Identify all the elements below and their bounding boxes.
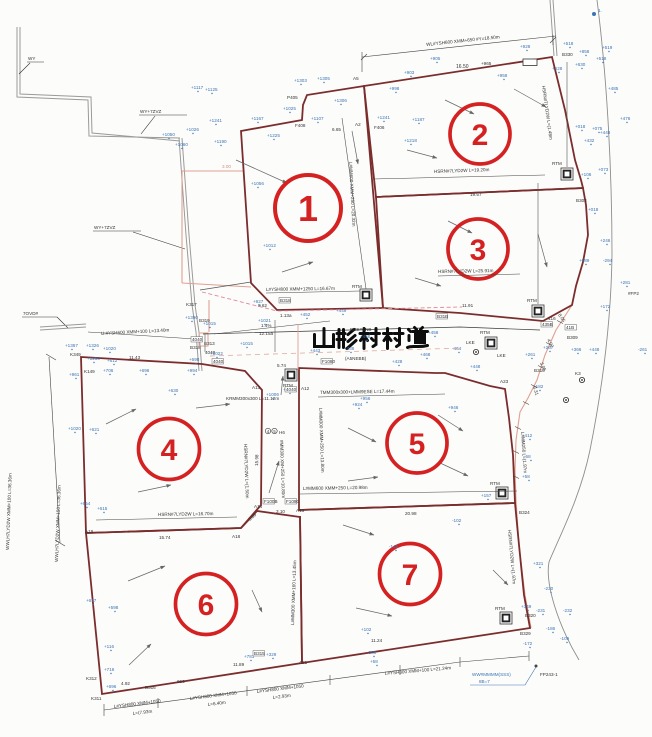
svg-text:+696: +696 — [139, 368, 150, 373]
svg-text:+1015: +1015 — [240, 341, 253, 346]
svg-text:+321: +321 — [533, 561, 544, 566]
svg-text:+349: +349 — [521, 604, 532, 609]
svg-text:1: 1 — [298, 188, 318, 229]
svg-text:1.4%: 1.4% — [261, 323, 271, 328]
svg-text:+1050: +1050 — [162, 132, 175, 137]
svg-text:4.92: 4.92 — [121, 681, 130, 686]
svg-text:20.98: 20.98 — [405, 511, 417, 516]
svg-text:A19: A19 — [85, 529, 94, 534]
svg-text:HSRN#7LYD2W L=16.70m: HSRN#7LYD2W L=16.70m — [158, 511, 214, 517]
svg-text:B324: B324 — [519, 510, 530, 515]
svg-text:+432: +432 — [584, 138, 595, 143]
svg-text:B329: B329 — [520, 631, 531, 636]
svg-text:1.13a: 1.13a — [280, 313, 292, 318]
svg-text:+448: +448 — [589, 347, 600, 352]
svg-text:L#YSH800 XMM+1050: L#YSH800 XMM+1050 — [190, 690, 238, 701]
svg-text:+1015: +1015 — [203, 321, 216, 326]
svg-text:A14: A14 — [254, 504, 263, 509]
svg-text:+1190: +1190 — [214, 139, 227, 144]
svg-text:-294: -294 — [603, 258, 613, 263]
svg-text:B320: B320 — [525, 613, 536, 618]
svg-text:A5: A5 — [353, 76, 359, 81]
svg-text:15.98: 15.98 — [254, 454, 259, 466]
svg-text:+1125: +1125 — [205, 87, 218, 92]
svg-text:-231: -231 — [536, 608, 546, 613]
svg-text:B31B: B31B — [437, 314, 448, 319]
svg-text:6.65: 6.65 — [332, 127, 341, 132]
svg-text:8.05: 8.05 — [557, 313, 566, 324]
svg-text:B316: B316 — [145, 685, 156, 690]
svg-text:A13: A13 — [296, 508, 305, 513]
svg-text:+1020: +1020 — [103, 346, 116, 351]
svg-text:RTM: RTM — [527, 298, 537, 303]
svg-text:WY: WY — [28, 56, 35, 61]
svg-text:A12: A12 — [301, 386, 310, 391]
svg-text:H6: H6 — [279, 430, 285, 435]
svg-text:19.57: 19.57 — [470, 192, 482, 197]
svg-text:+1390: +1390 — [185, 315, 198, 320]
svg-text:-172: -172 — [523, 641, 533, 646]
svg-text:B303: B303 — [576, 198, 587, 203]
svg-text:+612: +612 — [107, 358, 118, 363]
svg-text:LKE: LKE — [497, 353, 506, 358]
svg-text:+615: +615 — [97, 506, 108, 511]
svg-text:41B: 41B — [566, 325, 574, 330]
svg-text:+698: +698 — [189, 357, 200, 362]
svg-text:2: 2 — [472, 119, 489, 152]
svg-text:L=(7.93m: L=(7.93m — [133, 709, 153, 716]
svg-text:656: 656 — [177, 679, 185, 684]
svg-text:+903: +903 — [404, 70, 415, 75]
svg-text:11.43: 11.43 — [129, 355, 141, 360]
svg-text:F1090: F1090 — [286, 499, 299, 504]
svg-text:+1305: +1305 — [317, 76, 330, 81]
svg-text:+485: +485 — [608, 86, 619, 91]
svg-text:B330: B330 — [562, 52, 573, 57]
svg-text:+956: +956 — [360, 396, 371, 401]
svg-text:+927: +927 — [253, 299, 264, 304]
svg-text:-109: -109 — [560, 636, 570, 641]
svg-text:+696: +696 — [106, 684, 117, 689]
svg-text:4040: 4040 — [286, 387, 297, 392]
svg-text:RTM: RTM — [352, 284, 362, 289]
svg-text:+1117: +1117 — [191, 85, 204, 90]
svg-text:+1006: +1006 — [266, 392, 279, 397]
svg-text:+58: +58 — [370, 659, 378, 664]
svg-text:+706: +706 — [103, 368, 114, 373]
svg-text:L#MM300 XMM+160 L=13.45m: L#MM300 XMM+160 L=13.45m — [290, 560, 297, 625]
svg-text:+329: +329 — [266, 652, 277, 657]
svg-text:416: 416 — [548, 316, 556, 321]
svg-text:3: 3 — [470, 234, 487, 267]
svg-text:A2: A2 — [355, 122, 361, 127]
svg-text:+1022: +1022 — [210, 351, 223, 356]
svg-text:RTM: RTM — [490, 481, 500, 486]
svg-text:+1367: +1367 — [65, 343, 78, 348]
svg-text:+157: +157 — [481, 493, 492, 498]
svg-text:15.74: 15.74 — [159, 535, 171, 540]
svg-text:+1241: +1241 — [377, 115, 390, 120]
svg-text:F406: F406 — [374, 125, 385, 130]
svg-text:+448: +448 — [470, 364, 481, 369]
svg-text:WL#YSH600 XMM+650 #Y=18.50m: WL#YSH600 XMM+650 #Y=18.50m — [426, 34, 500, 47]
svg-text:1.: 1. — [598, 8, 602, 13]
svg-text:TMM300x300+LMM9ESE L=17.44m: TMM300x300+LMM9ESE L=17.44m — [320, 389, 395, 395]
svg-text:RTM: RTM — [480, 330, 490, 335]
svg-text:+958: +958 — [497, 73, 508, 78]
svg-text:-261: -261 — [638, 347, 648, 352]
svg-text:L#MM300 XMM+250 L=13.80m: L#MM300 XMM+250 L=13.80m — [318, 408, 325, 473]
svg-text:+073: +073 — [598, 167, 609, 172]
svg-text:L=2.93m: L=2.93m — [273, 693, 292, 700]
svg-text:12.15a: 12.15a — [259, 331, 273, 336]
svg-text:F408: F408 — [295, 123, 306, 128]
svg-text:+443: +443 — [310, 348, 321, 353]
svg-text:+518: +518 — [563, 41, 574, 46]
svg-text:-102: -102 — [452, 518, 462, 523]
svg-text:+928: +928 — [520, 44, 531, 49]
svg-text:L#YSH800 XMM+1050: L#YSH800 XMM+1050 — [257, 683, 305, 694]
svg-text:3.10: 3.10 — [276, 509, 285, 514]
svg-text:FP243-1: FP243-1 — [540, 672, 558, 677]
svg-text:+630: +630 — [168, 388, 179, 393]
svg-text:+448: +448 — [600, 130, 611, 135]
svg-text:+630: +630 — [575, 62, 586, 67]
svg-text:-380: -380 — [367, 650, 377, 655]
svg-text:+261: +261 — [525, 352, 536, 357]
svg-text:L=6.40m: L=6.40m — [208, 700, 227, 707]
svg-text:+1026: +1026 — [186, 127, 199, 132]
svg-text:+1060: +1060 — [175, 142, 188, 147]
svg-text:+366: +366 — [571, 347, 582, 352]
svg-text:11.89: 11.89 — [233, 662, 245, 667]
svg-text:+598: +598 — [108, 605, 119, 610]
svg-text:F100B: F100B — [264, 499, 278, 504]
svg-text:+621: +621 — [89, 427, 100, 432]
svg-text:+1187: +1187 — [412, 117, 425, 122]
svg-text:(A5NEBB): (A5NEBB) — [345, 356, 367, 361]
svg-text:HSRN#7LYD2W L=19.20m: HSRN#7LYD2W L=19.20m — [434, 167, 490, 174]
svg-text:+58: +58 — [522, 474, 530, 479]
svg-text:+998: +998 — [389, 86, 400, 91]
svg-text:+1056: +1056 — [251, 181, 264, 186]
svg-text:+994: +994 — [187, 368, 198, 373]
svg-text:BRE#SNB: BRE#SNB — [350, 327, 371, 332]
svg-text:WWLH7LYD2W XMM+100 L=36.36m: WWLH7LYD2W XMM+100 L=36.36m — [5, 473, 13, 550]
svg-text:+449: +449 — [336, 308, 347, 313]
svg-text:L#YSH800 XMM+1050: L#YSH800 XMM+1050 — [114, 698, 162, 709]
svg-text:WWLH7LYD2W XMM+150 L=36.36m: WWLH7LYD2W XMM+150 L=36.36m — [54, 485, 62, 562]
svg-text:LKE: LKE — [466, 340, 475, 345]
svg-text:A23: A23 — [500, 379, 509, 384]
svg-text:U:#YSH600 XMM+100 L=13.40m: U:#YSH600 XMM+100 L=13.40m — [101, 327, 170, 336]
svg-text:+106: +106 — [581, 172, 592, 177]
svg-text:HSRN#7LYD2W L=(1.50m: HSRN#7LYD2W L=(1.50m — [243, 444, 250, 499]
svg-text:+428: +428 — [392, 359, 403, 364]
svg-text:+965: +965 — [481, 61, 492, 66]
svg-text:+1167: +1167 — [251, 116, 264, 121]
svg-text:HSRN#7LYD2W L=(1.48m: HSRN#7LYD2W L=(1.48m — [541, 85, 554, 140]
svg-text:-68: -68 — [524, 454, 531, 459]
svg-text:+089: +089 — [579, 258, 590, 263]
svg-text:K311: K311 — [91, 696, 102, 701]
svg-text:B310: B310 — [534, 368, 545, 373]
svg-text:7: 7 — [402, 559, 419, 592]
svg-text:L#YSH800 XMM+100 L=21.24m: L#YSH800 XMM+100 L=21.24m — [385, 665, 452, 676]
svg-text:+1021: +1021 — [258, 318, 271, 323]
svg-text:#FP2: #FP2 — [628, 291, 639, 296]
svg-text:3.00: 3.00 — [222, 164, 231, 169]
svg-text:+267: +267 — [543, 345, 554, 350]
svg-text:+905: +905 — [430, 56, 441, 61]
svg-text:B309: B309 — [567, 335, 578, 340]
svg-text:+1107: +1107 — [311, 116, 324, 121]
svg-text:+961: +961 — [69, 372, 80, 377]
svg-text:WY+7ZVZ: WY+7ZVZ — [94, 225, 116, 230]
svg-text:+1218: +1218 — [404, 138, 417, 143]
svg-text:+1241: +1241 — [209, 118, 222, 123]
svg-text:6: 6 — [198, 589, 215, 622]
svg-text:+1225: +1225 — [267, 133, 280, 138]
svg-text:-232: -232 — [563, 608, 573, 613]
svg-text:+102: +102 — [361, 627, 372, 632]
svg-text:L#MM600 XMM+250 L=20.98m: L#MM600 XMM+250 L=20.98m — [303, 485, 368, 491]
svg-text:11.91: 11.91 — [462, 303, 474, 308]
svg-text:-230: -230 — [544, 586, 554, 591]
svg-text:+519: +519 — [602, 45, 613, 50]
svg-text:+438: +438 — [344, 346, 355, 351]
svg-text:4: 4 — [161, 434, 178, 467]
svg-text:4040: 4040 — [213, 359, 224, 364]
svg-text:+1020: +1020 — [68, 426, 81, 431]
svg-text:L#YSH800 XMM+1250 L=16.67m: L#YSH800 XMM+1250 L=16.67m — [266, 286, 335, 292]
svg-text:+018: +018 — [575, 124, 586, 129]
svg-text:+281: +281 — [620, 280, 631, 285]
svg-text:HSRN#7LYD2W L=25.91m: HSRN#7LYD2W L=25.91m — [438, 268, 494, 274]
svg-text:+1326: +1326 — [86, 343, 99, 348]
svg-text:RTM: RTM — [495, 606, 505, 611]
svg-text:K149: K149 — [84, 369, 95, 374]
svg-text:+858: +858 — [579, 49, 590, 54]
svg-text:A18: A18 — [232, 534, 241, 539]
svg-text:+246: +246 — [600, 238, 611, 243]
svg-text:+1303: +1303 — [294, 78, 307, 83]
svg-text:-412: -412 — [523, 433, 533, 438]
svg-text:B318: B318 — [280, 298, 291, 303]
svg-text:+1012: +1012 — [263, 243, 276, 248]
svg-text:+458: +458 — [428, 330, 439, 335]
svg-text:K349: K349 — [70, 352, 81, 357]
svg-text:+468: +468 — [420, 352, 431, 357]
svg-text:WY+7ZVZ: WY+7ZVZ — [140, 109, 162, 114]
svg-text:K312: K312 — [86, 676, 97, 681]
svg-text:+1025: +1025 — [283, 106, 296, 111]
svg-text:A13: A13 — [252, 385, 261, 390]
svg-text:+448: +448 — [360, 334, 371, 339]
svg-text:+1306: +1306 — [334, 98, 347, 103]
svg-text:+518: +518 — [596, 56, 607, 61]
svg-text:WW#MMMM(SSS): WW#MMMM(SSS) — [472, 672, 511, 677]
svg-text:16.50: 16.50 — [456, 64, 469, 70]
svg-text:A21: A21 — [299, 660, 308, 665]
svg-text:+946: +946 — [448, 405, 459, 410]
svg-text:435B: 435B — [542, 322, 553, 327]
svg-text:+924: +924 — [352, 402, 363, 407]
svg-text:+018: +018 — [588, 207, 599, 212]
svg-text:+617: +617 — [86, 598, 97, 603]
svg-text:K3: K3 — [575, 371, 581, 376]
svg-text:P405: P405 — [287, 95, 298, 100]
svg-text:+628: +628 — [552, 66, 563, 71]
svg-text:5.74: 5.74 — [277, 363, 286, 368]
svg-text:+1250: +1250 — [87, 356, 100, 361]
svg-text:7OVD#: 7OVD# — [23, 311, 39, 316]
svg-text:4040: 4040 — [192, 337, 203, 342]
svg-text:B313: B313 — [204, 341, 215, 346]
svg-text:+476: +476 — [620, 116, 631, 121]
svg-text:+172: +172 — [600, 304, 611, 309]
svg-text:HSRN#7LYD2W L=(1.97m: HSRN#7LYD2W L=(1.97m — [507, 530, 517, 585]
svg-text:RTM: RTM — [552, 161, 562, 166]
svg-text:B315: B315 — [254, 651, 265, 656]
svg-text:+654: +654 — [80, 501, 91, 506]
svg-text:+716: +716 — [104, 667, 115, 672]
svg-text:8B=7: 8B=7 — [479, 679, 490, 684]
svg-text:+452: +452 — [300, 312, 311, 317]
svg-text:+116: +116 — [104, 644, 114, 649]
svg-text:#MM300 XM+250 L=10.80m: #MM300 XM+250 L=10.80m — [279, 440, 286, 499]
svg-text:K317: K317 — [186, 302, 197, 307]
svg-text:5: 5 — [409, 428, 426, 461]
svg-text:F1080: F1080 — [322, 359, 335, 364]
svg-text:-142: -142 — [389, 544, 399, 549]
svg-text:11.24: 11.24 — [371, 638, 383, 643]
svg-text:-186: -186 — [546, 626, 556, 631]
svg-text:B318: B318 — [190, 345, 201, 350]
